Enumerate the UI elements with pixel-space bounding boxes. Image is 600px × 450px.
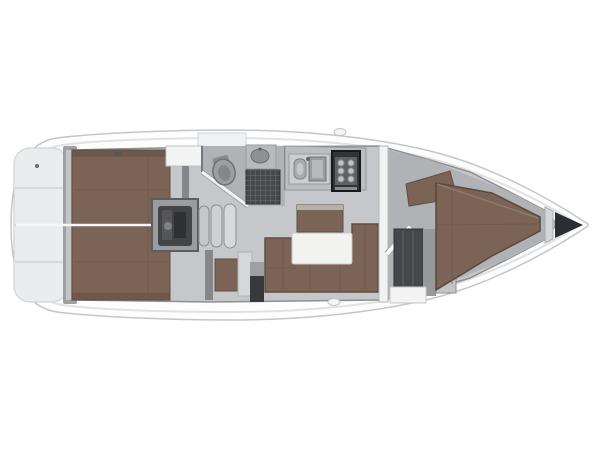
- cleat: [114, 152, 121, 156]
- bulkhead-wall: [379, 146, 388, 302]
- heads-faucet: [259, 148, 262, 151]
- companionway-wall-bottom: [205, 250, 213, 300]
- wardrobe: [394, 229, 423, 296]
- chart-table: [215, 259, 238, 291]
- companionway-wall-top: [182, 166, 189, 202]
- aft-berth-bottom-shade: [72, 293, 170, 300]
- step-2: [211, 205, 222, 247]
- engine-detail-2: [174, 212, 186, 238]
- engine-pulley: [164, 222, 172, 230]
- step-3: [224, 204, 236, 248]
- settee-backrest-top: [297, 205, 343, 210]
- heads-sink-basin: [251, 149, 269, 163]
- galley-sink-round-basin: [297, 163, 304, 175]
- chain-locker-bulkhead: [545, 207, 553, 243]
- galley: [285, 146, 366, 191]
- deck-fitting-bottom: [328, 299, 340, 306]
- wet-locker-top: [250, 262, 264, 276]
- wardrobe-side: [423, 229, 436, 296]
- saloon-table: [292, 233, 352, 264]
- yacht-floorplan: [0, 0, 600, 450]
- stove-knobs: [335, 187, 357, 190]
- galley-faucet: [306, 157, 310, 161]
- transom-fitting: [35, 164, 39, 168]
- yacht-floorplan-canvas: [0, 0, 600, 450]
- shower-grate-grid: [246, 170, 280, 204]
- nav-seat: [238, 252, 252, 296]
- galley-sink-square-basin: [312, 160, 323, 178]
- step-1: [199, 206, 209, 246]
- port-locker: [166, 146, 203, 166]
- deck-fitting-top: [334, 129, 346, 136]
- forward-bench: [390, 287, 426, 303]
